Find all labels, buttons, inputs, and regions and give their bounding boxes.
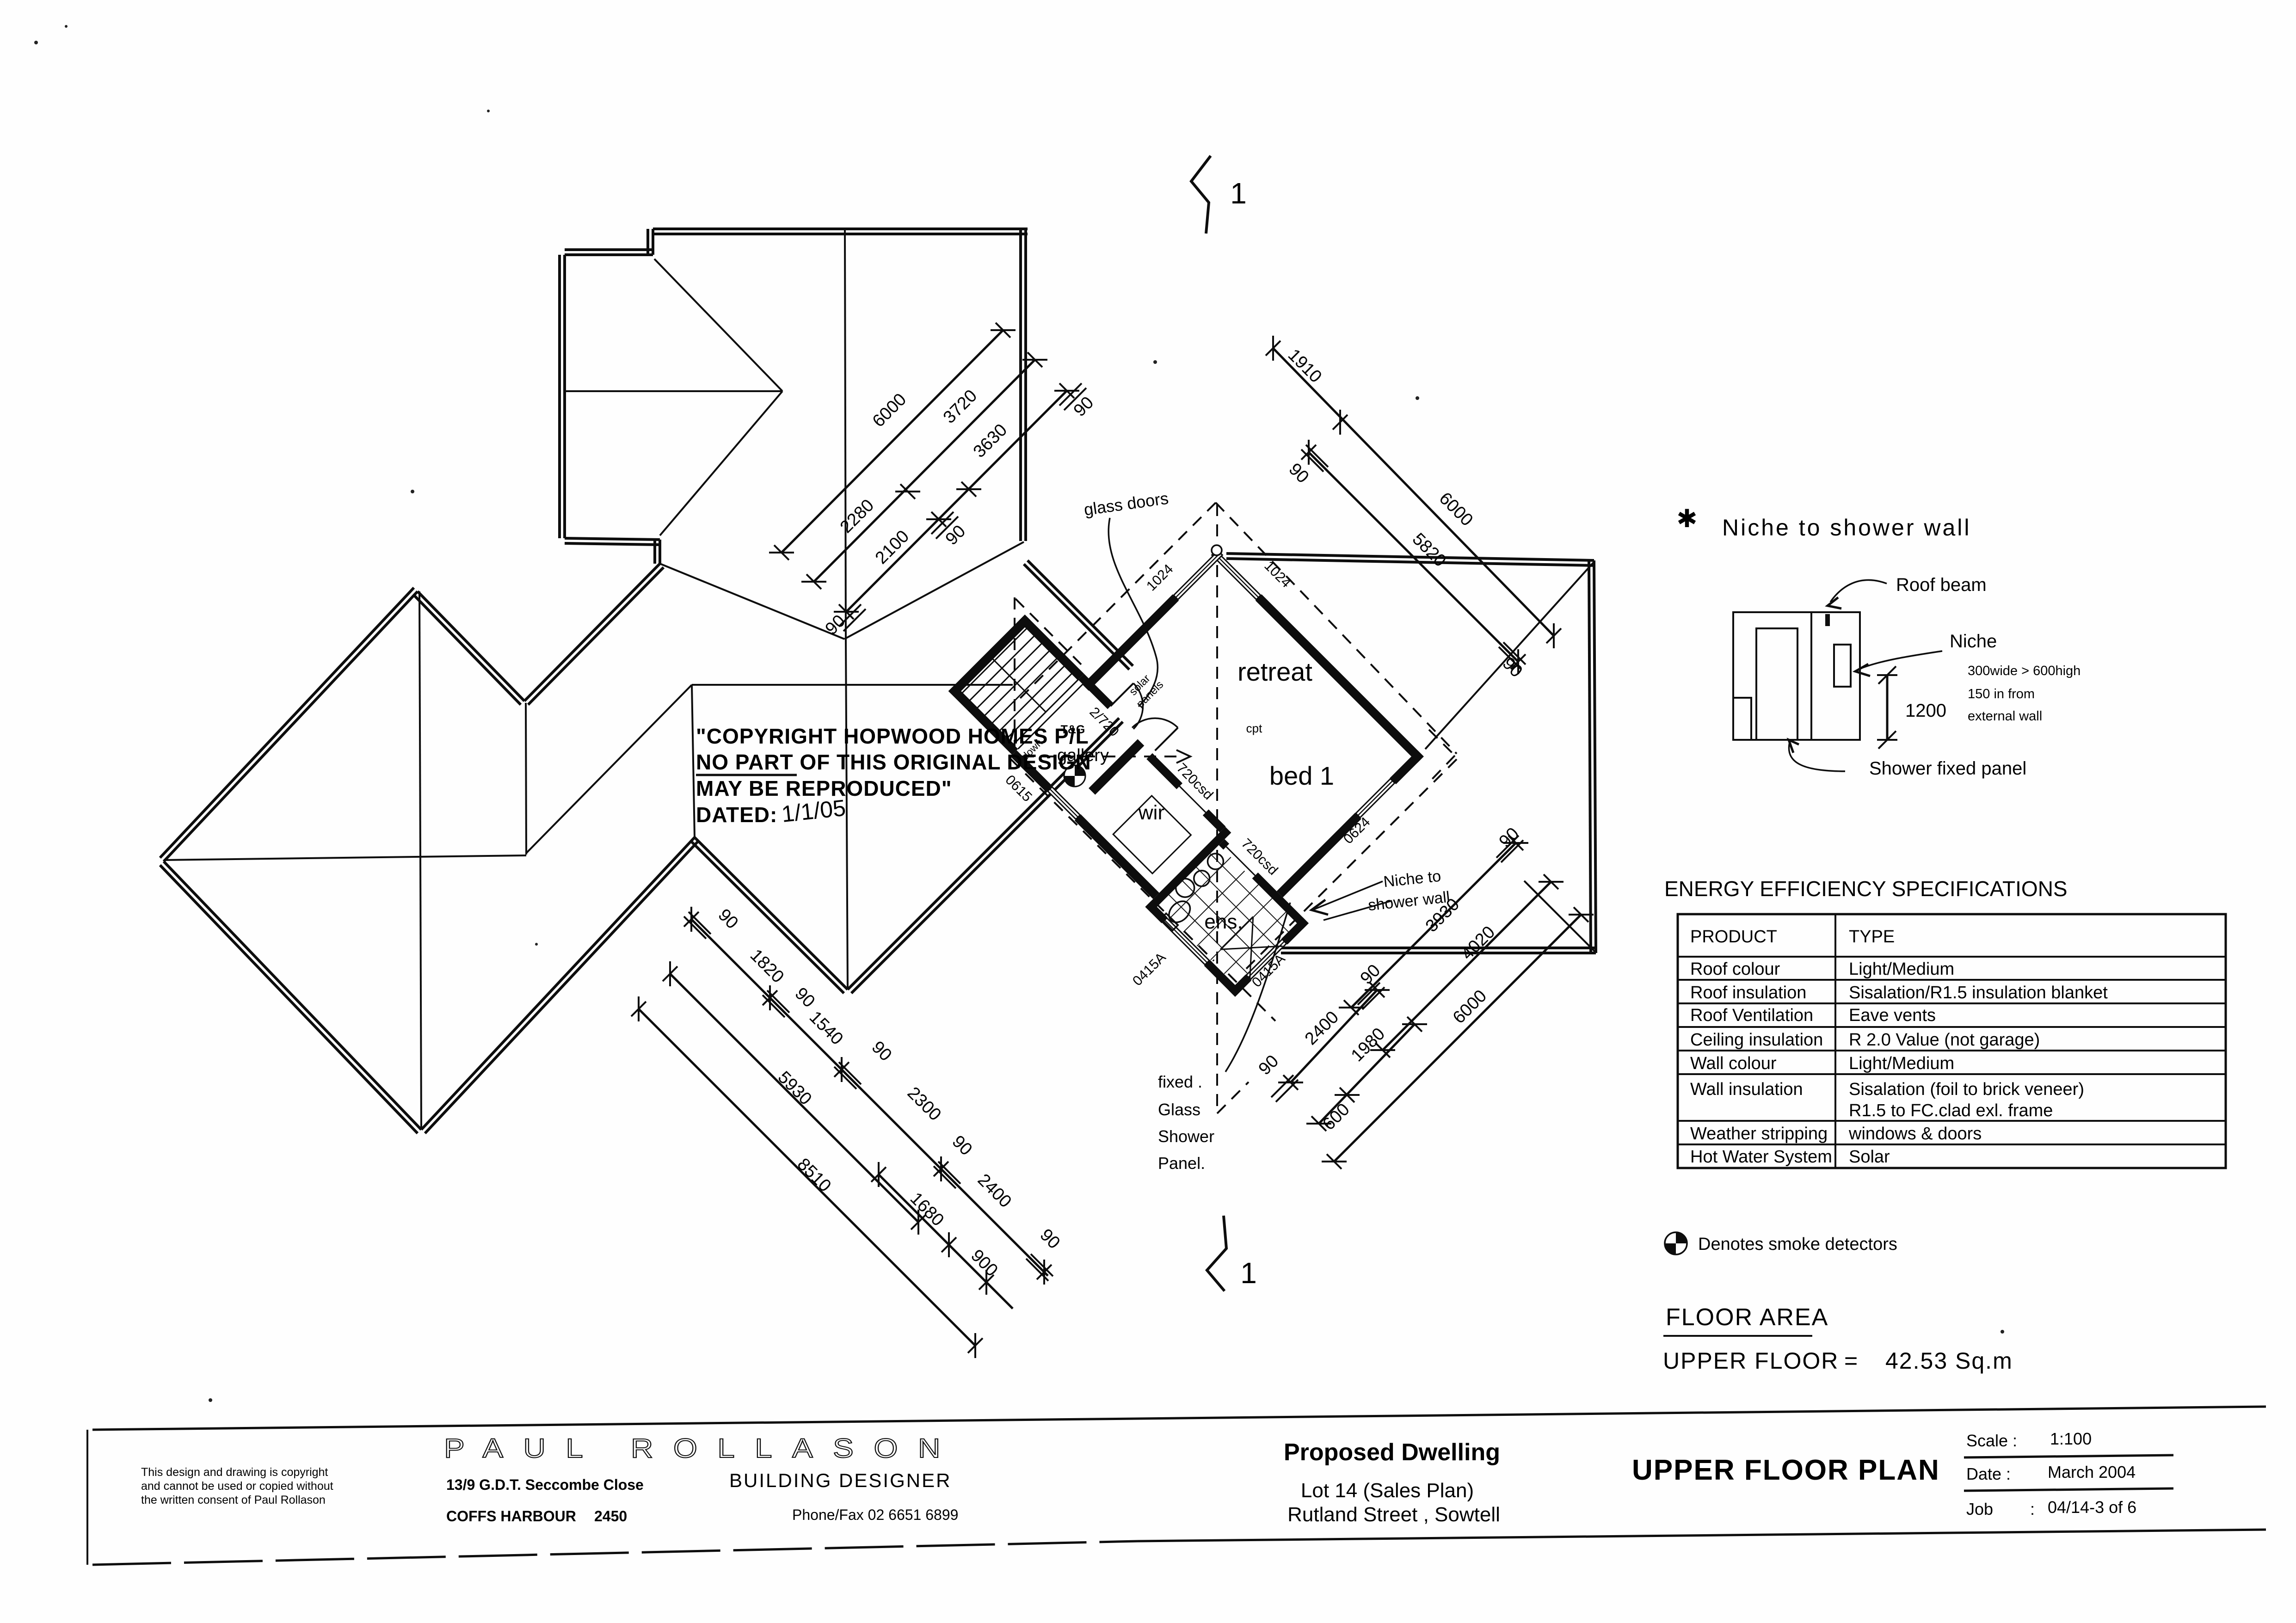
svg-text:TYPE: TYPE (1849, 927, 1895, 947)
svg-text:DATED:: DATED: (696, 803, 777, 827)
svg-text:Proposed Dwelling: Proposed Dwelling (1284, 1439, 1500, 1466)
svg-text:UPPER FLOOR: UPPER FLOOR (1663, 1348, 1839, 1374)
svg-text:150 in from: 150 in from (1968, 687, 2035, 701)
svg-text:R 2.0 Value (not garage): R 2.0 Value (not garage) (1849, 1030, 2040, 1050)
svg-text:Scale :: Scale : (1966, 1431, 2017, 1450)
svg-text:2450: 2450 (594, 1508, 627, 1525)
svg-text:Job: Job (1966, 1500, 1993, 1518)
svg-text:fixed .: fixed . (1158, 1072, 1202, 1091)
svg-text:Sisalation (foil to brick vene: Sisalation (foil to brick veneer) (1849, 1080, 2084, 1099)
svg-text:Eave vents: Eave vents (1849, 1006, 1936, 1025)
svg-text:=: = (1844, 1348, 1858, 1374)
svg-text:Weather stripping: Weather stripping (1690, 1124, 1828, 1143)
svg-text:the written consent of Paul Ro: the written consent of Paul Rollason (141, 1494, 326, 1506)
svg-text:cpt: cpt (1246, 721, 1262, 735)
svg-text:1:100: 1:100 (2050, 1429, 2092, 1448)
svg-text:1: 1 (1240, 1256, 1257, 1290)
svg-text:This design and drawing is cop: This design and drawing is copyright (141, 1466, 328, 1479)
svg-text::: : (2030, 1500, 2035, 1518)
svg-text:Niche: Niche (1950, 631, 1997, 652)
svg-text:wir: wir (1138, 801, 1164, 824)
svg-text:COFFS HARBOUR: COFFS HARBOUR (446, 1508, 576, 1525)
svg-text:Sisalation/R1.5 insulation bla: Sisalation/R1.5 insulation blanket (1849, 983, 2108, 1002)
svg-text:external wall: external wall (1968, 709, 2042, 724)
svg-text:March 2004: March 2004 (2048, 1463, 2136, 1482)
svg-text:"COPYRIGHT HOPWOOD HOMES P/L: "COPYRIGHT HOPWOOD HOMES P/L (696, 724, 1089, 748)
svg-text:Ceiling insulation: Ceiling insulation (1690, 1030, 1823, 1050)
svg-text:Niche to shower wall: Niche to shower wall (1722, 515, 1971, 541)
svg-text:Solar: Solar (1849, 1147, 1890, 1167)
svg-text:retreat: retreat (1237, 657, 1312, 686)
svg-text:Shower: Shower (1158, 1127, 1214, 1146)
svg-text:PAUL ROLLASON: PAUL ROLLASON (444, 1433, 960, 1463)
svg-text:FLOOR AREA: FLOOR AREA (1666, 1304, 1828, 1331)
svg-text:Hot Water System: Hot Water System (1690, 1147, 1832, 1167)
svg-text:UPPER FLOOR PLAN: UPPER FLOOR PLAN (1632, 1454, 1940, 1486)
svg-text:42.53 Sq.m: 42.53 Sq.m (1885, 1348, 2013, 1374)
svg-text:Lot 14 (Sales Plan): Lot 14 (Sales Plan) (1301, 1479, 1474, 1502)
svg-text:bed 1: bed 1 (1269, 761, 1334, 790)
svg-text:1200: 1200 (1905, 701, 1946, 721)
svg-text:Light/Medium: Light/Medium (1849, 1054, 1954, 1073)
svg-text:Roof Ventilation: Roof Ventilation (1690, 1006, 1813, 1025)
svg-text:300wide > 600high: 300wide > 600high (1968, 664, 2081, 678)
svg-text:NO PART OF THIS ORIGINAL DESIG: NO PART OF THIS ORIGINAL DESIGN (696, 750, 1091, 774)
svg-text:Rutland Street , Sowtell: Rutland Street , Sowtell (1287, 1503, 1500, 1526)
svg-text:Light/Medium: Light/Medium (1849, 959, 1954, 979)
svg-text:BUILDING DESIGNER: BUILDING DESIGNER (729, 1469, 951, 1491)
svg-text:Roof beam: Roof beam (1896, 575, 1987, 595)
svg-text:and cannot be used or copied w: and cannot be used or copied without (141, 1480, 333, 1493)
svg-text:Panel.: Panel. (1158, 1154, 1205, 1173)
svg-text:ens.: ens. (1204, 910, 1243, 933)
svg-text:1: 1 (1230, 177, 1247, 210)
svg-text:04/14-3 of 6: 04/14-3 of 6 (2048, 1498, 2136, 1517)
svg-text:✱: ✱ (1676, 505, 1697, 533)
svg-text:Date :: Date : (1966, 1464, 2011, 1483)
svg-text:Wall colour: Wall colour (1690, 1054, 1777, 1073)
svg-text:PRODUCT: PRODUCT (1690, 927, 1777, 947)
svg-text:Wall insulation: Wall insulation (1690, 1080, 1803, 1099)
svg-text:Roof colour: Roof colour (1690, 959, 1780, 979)
svg-text:ENERGY EFFICIENCY SPECIFICATIO: ENERGY EFFICIENCY SPECIFICATIONS (1664, 877, 2068, 901)
svg-text:windows & doors: windows & doors (1848, 1124, 1982, 1143)
svg-text:13/9 G.D.T. Seccombe Close: 13/9 G.D.T. Seccombe Close (446, 1476, 644, 1493)
svg-text:R1.5 to FC.clad exl. frame: R1.5 to FC.clad exl. frame (1849, 1101, 2053, 1120)
svg-text:Phone/Fax 02 6651 6899: Phone/Fax 02 6651 6899 (792, 1506, 958, 1523)
svg-text:Shower fixed panel: Shower fixed panel (1869, 758, 2026, 779)
svg-text:Roof insulation: Roof insulation (1690, 983, 1806, 1002)
svg-text:Denotes smoke detectors: Denotes smoke detectors (1698, 1235, 1897, 1254)
svg-text:Glass: Glass (1158, 1100, 1200, 1119)
